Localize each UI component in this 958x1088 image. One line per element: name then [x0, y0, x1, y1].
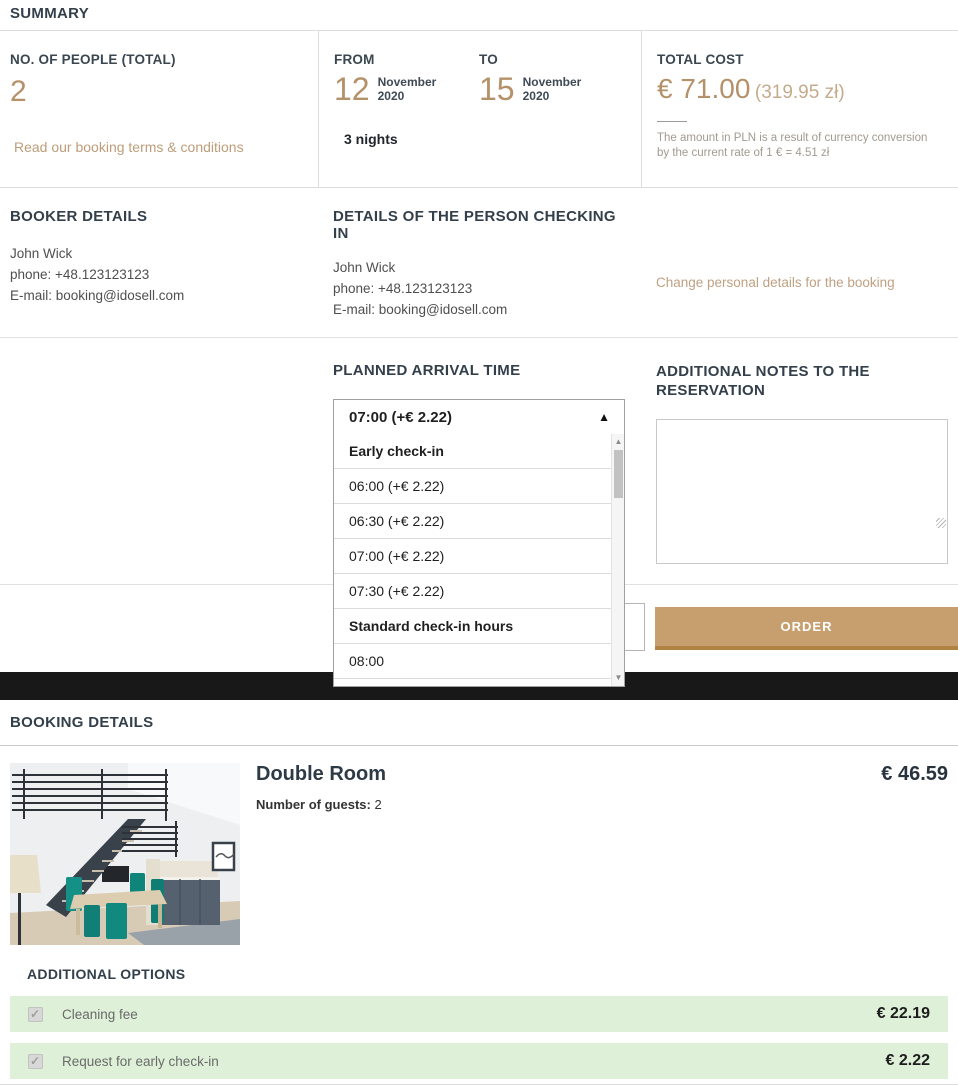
scrollbar-thumb[interactable]: [614, 450, 623, 498]
arrival-time-selected-value: 07:00 (+€ 2.22): [349, 409, 452, 426]
from-label: FROM: [334, 52, 479, 67]
change-details-column: Change personal details for the booking: [641, 188, 958, 337]
from-month: November: [378, 75, 437, 89]
checked-checkbox[interactable]: [28, 1007, 43, 1022]
additional-options-rows: Cleaning fee € 22.19 Request for early c…: [10, 996, 948, 1088]
people-label: NO. OF PEOPLE (TOTAL): [10, 52, 306, 67]
additional-option-price: € 2.22: [886, 1052, 930, 1070]
room-name: Double Room: [256, 763, 386, 786]
chevron-up-icon: ▲: [598, 400, 610, 435]
dropdown-option-label: Standard check-in hours: [349, 618, 513, 634]
booking-summary-page: SUMMARY NO. OF PEOPLE (TOTAL) 2 Read our…: [0, 0, 958, 1088]
checkin-person-email: E-mail: booking@idosell.com: [333, 299, 626, 320]
arrival-time-block: PLANNED ARRIVAL TIME 07:00 (+€ 2.22) ▲: [333, 338, 625, 436]
dropdown-option[interactable]: Early check-in: [334, 434, 611, 469]
arrival-time-select[interactable]: 07:00 (+€ 2.22) ▲: [333, 399, 625, 436]
dates-column: FROM 12 November 2020 TO 15 Novemb: [318, 31, 641, 187]
room-guests: Number of guests: 2: [256, 797, 386, 812]
personal-details-row: BOOKER DETAILS John Wick phone: +48.1231…: [0, 188, 958, 338]
additional-option-row: Cleaning fee € 22.19: [10, 996, 948, 1032]
dropdown-option[interactable]: 07:00 (+€ 2.22): [334, 539, 611, 574]
booker-email: E-mail: booking@idosell.com: [10, 285, 306, 306]
booking-details-title: BOOKING DETAILS: [10, 714, 153, 731]
dropdown-option-label: 07:00 (+€ 2.22): [349, 548, 444, 564]
dropdown-option[interactable]: 07:30 (+€ 2.22): [334, 574, 611, 609]
dropdown-option-label: 06:00 (+€ 2.22): [349, 478, 444, 494]
people-value: 2: [10, 75, 306, 109]
room-row: Double Room Number of guests: 2 € 46.59: [0, 746, 958, 960]
booker-details-title: BOOKER DETAILS: [10, 208, 306, 225]
room-price: € 46.59: [881, 763, 948, 786]
checkin-person-phone: phone: +48.123123123: [333, 278, 626, 299]
dropdown-option[interactable]: 06:00 (+€ 2.22): [334, 469, 611, 504]
notes-textarea[interactable]: [656, 419, 948, 564]
divider: [657, 121, 687, 122]
dropdown-option[interactable]: 06:30 (+€ 2.22): [334, 504, 611, 539]
total-cost-label: TOTAL COST: [657, 52, 943, 67]
from-month-year: November 2020: [378, 75, 437, 103]
order-button[interactable]: ORDER: [655, 607, 958, 650]
additional-option-label: Request for early check-in: [62, 1054, 886, 1069]
from-day: 12: [334, 73, 370, 105]
conversion-note: The amount in PLN is a result of currenc…: [657, 131, 943, 161]
to-label: TO: [479, 52, 624, 67]
checkin-person-title: DETAILS OF THE PERSON CHECKING IN: [333, 208, 618, 242]
additional-option-price: € 22.19: [877, 1005, 930, 1023]
checkin-person-name: John Wick: [333, 257, 626, 278]
additional-option-label: Cleaning fee: [62, 1007, 877, 1022]
room-info: Double Room Number of guests: 2: [256, 763, 386, 812]
dropdown-option[interactable]: 08:00: [334, 644, 611, 679]
to-date: TO 15 November 2020: [479, 52, 624, 105]
additional-option-row: Request for early check-in € 2.22: [10, 1043, 948, 1079]
from-date: FROM 12 November 2020: [334, 52, 479, 105]
additional-options-title: ADDITIONAL OPTIONS: [27, 966, 185, 982]
summary-row: NO. OF PEOPLE (TOTAL) 2 Read our booking…: [0, 31, 958, 188]
total-cost-column: TOTAL COST € 71.00 (319.95 zł) The amoun…: [641, 31, 958, 187]
to-day: 15: [479, 73, 515, 105]
terms-and-conditions-link[interactable]: Read our booking terms & conditions: [14, 139, 244, 155]
guests-label: Number of guests:: [256, 797, 371, 812]
total-cost-eur: € 71.00: [657, 73, 750, 104]
dropdown-scrollbar[interactable]: ▲ ▼: [611, 434, 624, 686]
change-personal-details-link[interactable]: Change personal details for the booking: [656, 275, 895, 290]
summary-section-title: SUMMARY: [10, 5, 89, 22]
dropdown-option-label: 06:30 (+€ 2.22): [349, 513, 444, 529]
arrival-time-dropdown-list: Early check-in 06:00 (+€ 2.22) 06:30 (+€…: [333, 434, 625, 687]
arrival-time-title: PLANNED ARRIVAL TIME: [333, 362, 625, 379]
room-photo: [10, 763, 240, 945]
checked-checkbox[interactable]: [28, 1054, 43, 1069]
people-column: NO. OF PEOPLE (TOTAL) 2 Read our booking…: [0, 31, 318, 187]
dropdown-option-label: Early check-in: [349, 443, 444, 459]
dropdown-option-label: 08:00: [349, 653, 384, 669]
notes-block: ADDITIONAL NOTES TO THE RESERVATION: [656, 338, 948, 564]
conversion-note-line2: by the current rate of 1 € = 4.51 zł: [657, 147, 829, 159]
booker-phone: phone: +48.123123123: [10, 264, 306, 285]
to-year: 2020: [523, 89, 550, 103]
checkin-person-details: DETAILS OF THE PERSON CHECKING IN John W…: [318, 188, 641, 337]
scrollbar-down-arrow-icon[interactable]: ▼: [612, 672, 625, 684]
scrollbar-up-arrow-icon[interactable]: ▲: [612, 436, 625, 448]
from-year: 2020: [378, 89, 405, 103]
guests-value: 2: [374, 797, 381, 812]
notes-title: ADDITIONAL NOTES TO THE RESERVATION: [656, 362, 946, 400]
booker-details: BOOKER DETAILS John Wick phone: +48.1231…: [0, 188, 318, 337]
conversion-note-line1: The amount in PLN is a result of currenc…: [657, 132, 927, 144]
dropdown-option-label: 07:30 (+€ 2.22): [349, 583, 444, 599]
nights-count: 3 nights: [344, 131, 626, 147]
to-month: November: [523, 75, 582, 89]
divider: [0, 1084, 958, 1085]
dropdown-options: Early check-in 06:00 (+€ 2.22) 06:30 (+€…: [334, 434, 611, 686]
textarea-resize-handle[interactable]: [936, 518, 946, 528]
to-month-year: November 2020: [523, 75, 582, 103]
total-cost-pln: (319.95 zł): [755, 82, 845, 103]
dropdown-option[interactable]: Standard check-in hours: [334, 609, 611, 644]
booker-name: John Wick: [10, 243, 306, 264]
